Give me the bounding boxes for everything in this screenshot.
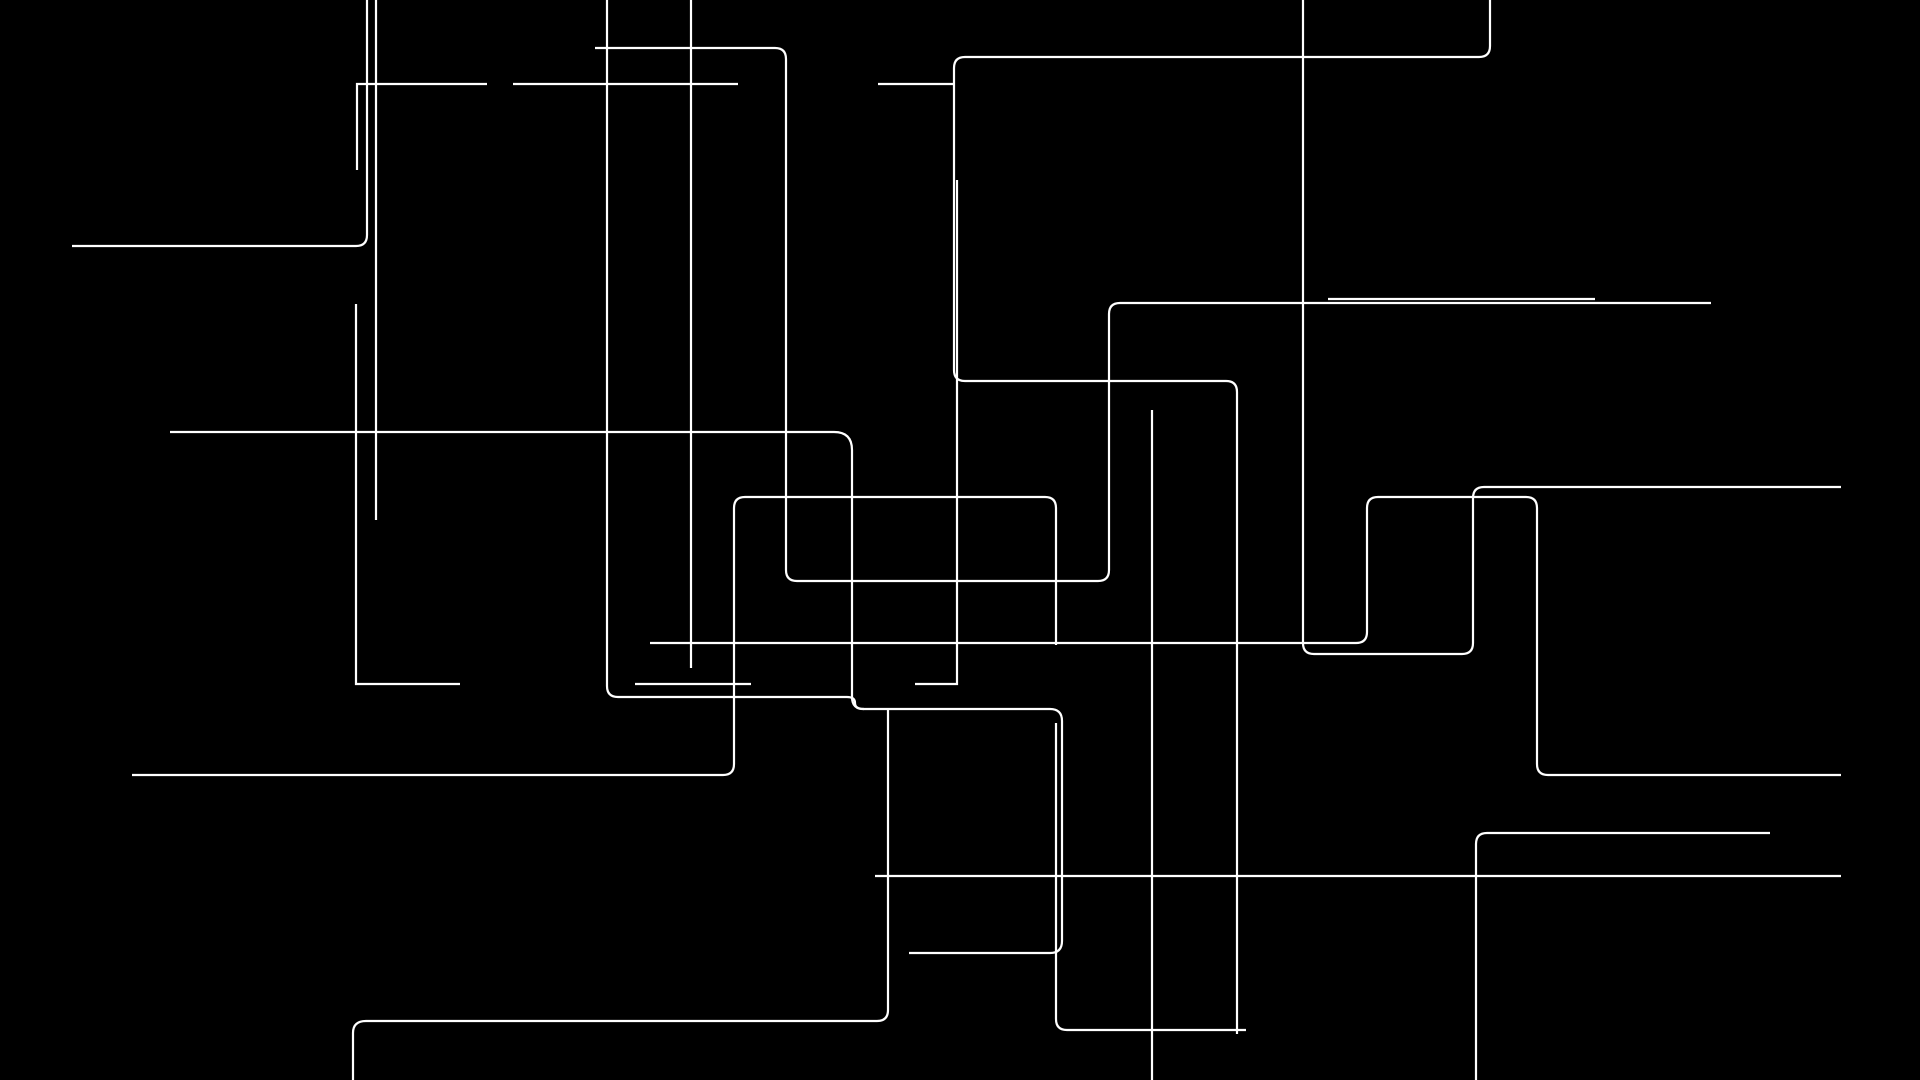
line-art-svg bbox=[0, 0, 1920, 1080]
background bbox=[0, 0, 1920, 1080]
abstract-line-art-canvas bbox=[0, 0, 1920, 1080]
